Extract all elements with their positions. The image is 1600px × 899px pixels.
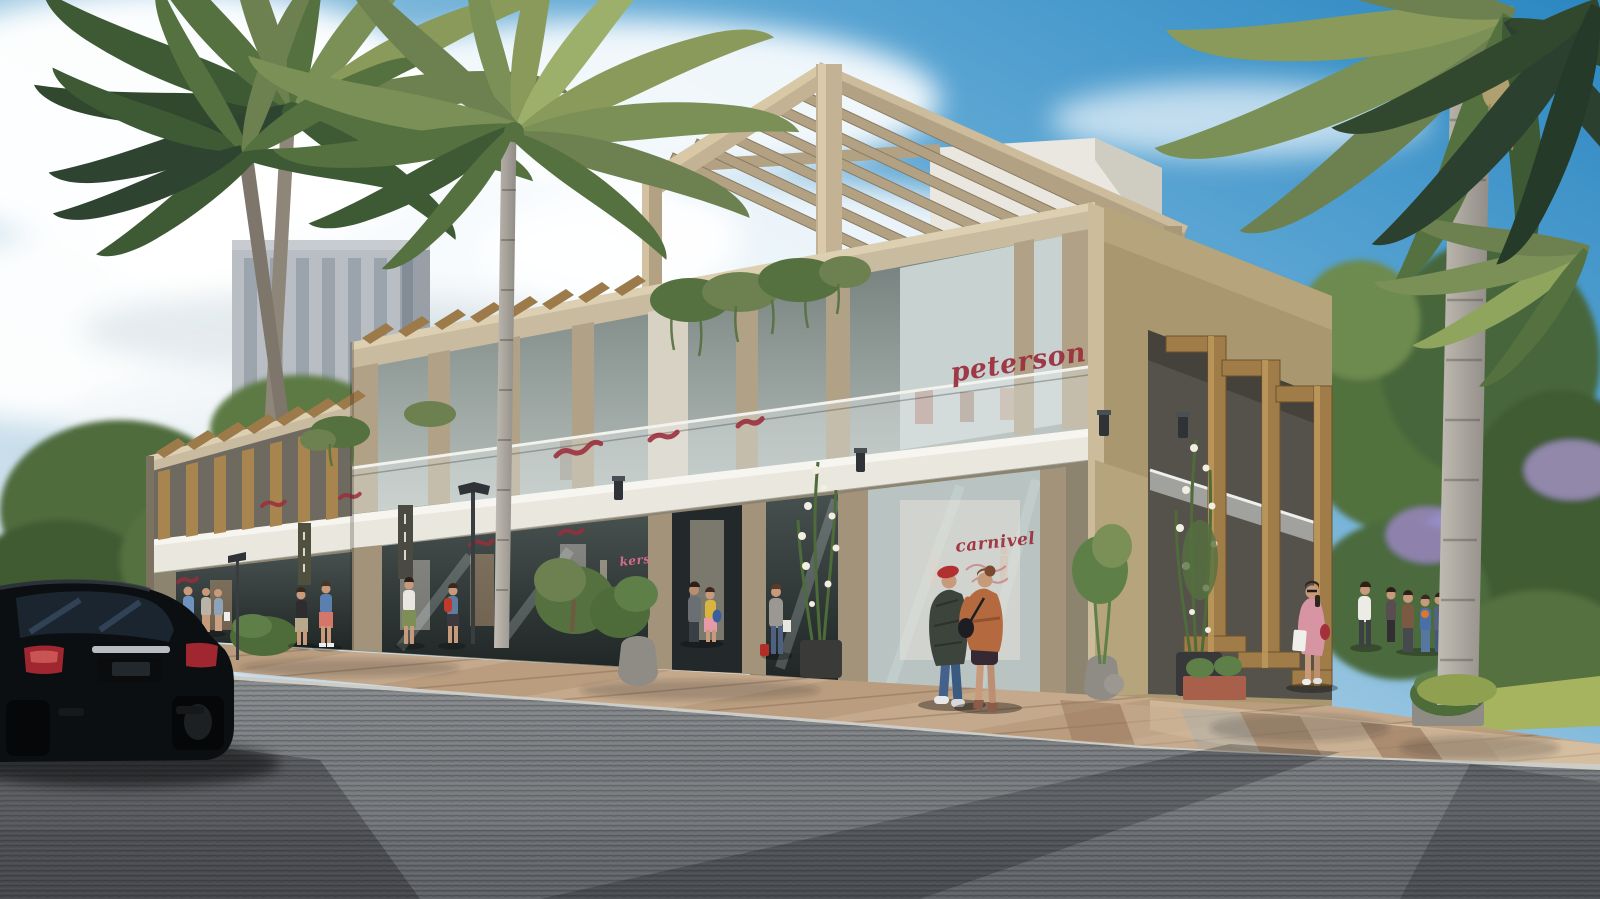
pedestrian <box>1386 587 1396 642</box>
architectural-rendering: peterson <box>0 0 1600 899</box>
terracotta-planter <box>1183 676 1246 700</box>
taillight-right <box>186 643 218 668</box>
chrome-trim <box>92 646 170 653</box>
scene-canvas: peterson <box>0 0 1600 899</box>
stone-bollard <box>1104 674 1124 694</box>
